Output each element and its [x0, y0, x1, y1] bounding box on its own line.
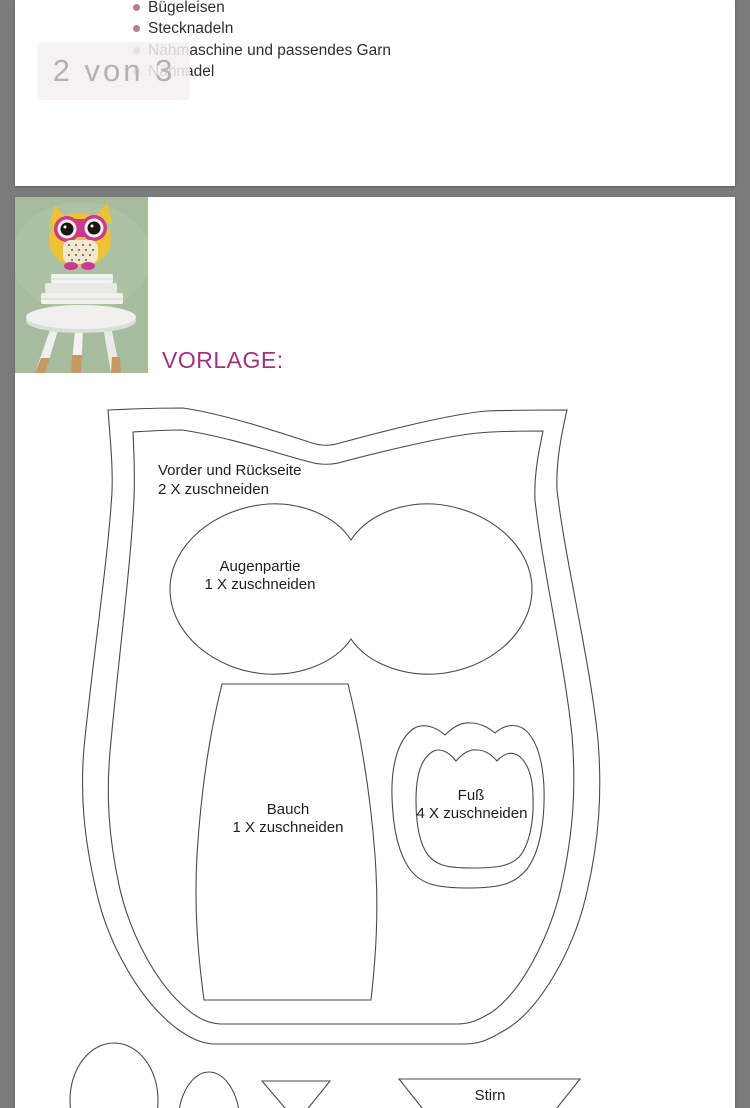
piece-label: Bauch	[267, 801, 310, 818]
beak-triangle-piece	[262, 1081, 330, 1108]
piece-quantity: 2 X zuschneiden	[158, 481, 269, 498]
list-item-label: Bügeleisen	[148, 0, 225, 16]
piece-quantity: 4 X zuschneiden	[417, 805, 528, 822]
list-item: Stecknadeln	[133, 18, 735, 39]
eye-circle-piece	[70, 1043, 158, 1108]
piece-label: Fuß	[458, 787, 485, 804]
piece-label: Stirn	[475, 1087, 506, 1104]
belly-panel-outline	[196, 684, 377, 1000]
list-item: Nähmaschine und passendes Garn	[133, 40, 735, 61]
list-item: Nähnadel	[133, 61, 735, 82]
body-outer-outline	[83, 408, 600, 1044]
small-oval-piece	[178, 1072, 240, 1108]
piece-label: Augenpartie	[220, 558, 301, 575]
list-item-label: Stecknadeln	[148, 20, 233, 37]
piece-label: Vorder und Rückseite	[158, 462, 301, 479]
document-page-1[interactable]: Bügeleisen Stecknadeln Nähmaschine und p…	[15, 0, 735, 186]
piece-quantity: 1 X zuschneiden	[233, 819, 344, 836]
owl-sewing-pattern-drawing: Vorder und Rückseite 2 X zuschneiden Aug…	[15, 197, 735, 1108]
list-item: Bügeleisen	[133, 0, 735, 18]
piece-quantity: 1 X zuschneiden	[205, 576, 316, 593]
document-page-2[interactable]: VORLAGE: Vorder und Rückseite 2 X zuschn…	[15, 197, 735, 1108]
pdf-viewer: { "viewer": { "page_indicator": "2 von 3…	[0, 0, 750, 1108]
page-number-badge: 2 von 3	[38, 42, 190, 100]
